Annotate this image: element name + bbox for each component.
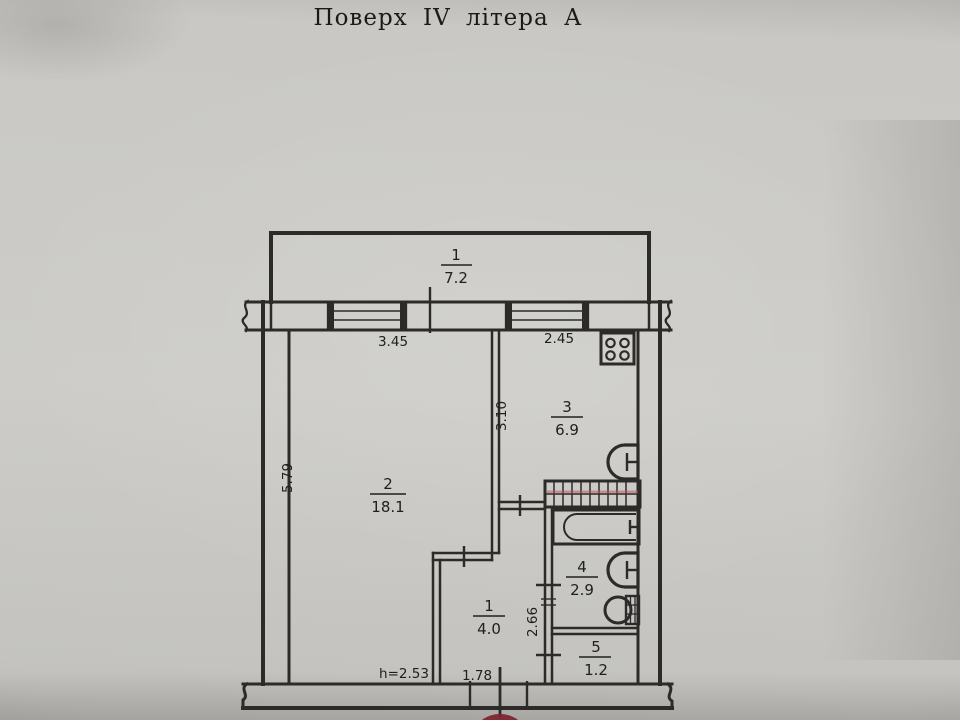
dim-hallway-side: 2.66 [525, 607, 541, 637]
window-icon-living [328, 302, 406, 330]
room-label-bathroom: 4 2.9 [566, 558, 598, 599]
svg-text:4.0: 4.0 [477, 620, 501, 638]
dim-kitchen-width: 2.45 [544, 331, 574, 347]
floor-plan: 1 7.2 2 18.1 3 6.9 4 2.9 1 4.0 5 1.2 [0, 0, 960, 720]
svg-text:1: 1 [451, 246, 461, 264]
window-icon-kitchen [506, 302, 588, 330]
scanned-floorplan-photo: { "title": "Поверх IV літера А", "plan":… [0, 0, 960, 720]
svg-text:1: 1 [484, 597, 494, 615]
svg-text:18.1: 18.1 [371, 498, 404, 516]
room-label-kitchen: 3 6.9 [551, 398, 583, 439]
vent-shaft-icon [545, 481, 640, 507]
room-label-balcony: 1 7.2 [441, 246, 472, 287]
room-label-living: 2 18.1 [370, 475, 406, 516]
bathtub-icon [553, 510, 639, 544]
dim-kitchen-depth: 3.10 [494, 401, 510, 431]
svg-text:1.2: 1.2 [584, 661, 608, 679]
dim-living-depth: 5.79 [280, 463, 296, 493]
room-label-hallway: 1 4.0 [473, 597, 505, 638]
walls [243, 233, 672, 708]
toilet-icon [605, 596, 639, 624]
sink-icon-bathroom [608, 553, 638, 587]
dimension-labels: 3.45 2.45 3.10 5.79 2.66 1.78 h=2.53 [280, 331, 574, 684]
svg-text:4: 4 [577, 558, 587, 576]
svg-text:7.2: 7.2 [444, 269, 468, 287]
svg-text:6.9: 6.9 [555, 421, 579, 439]
svg-text:2: 2 [383, 475, 393, 493]
dim-ceiling-height: h=2.53 [379, 666, 429, 682]
stove-icon [601, 333, 634, 364]
dim-hallway-width: 1.78 [462, 668, 492, 684]
svg-text:3: 3 [562, 398, 572, 416]
room-label-wc: 5 1.2 [579, 638, 611, 679]
svg-text:2.9: 2.9 [570, 581, 594, 599]
sink-icon-kitchen [608, 445, 638, 479]
stamp-mark [477, 714, 523, 720]
dim-living-width: 3.45 [378, 334, 408, 350]
svg-text:5: 5 [591, 638, 601, 656]
